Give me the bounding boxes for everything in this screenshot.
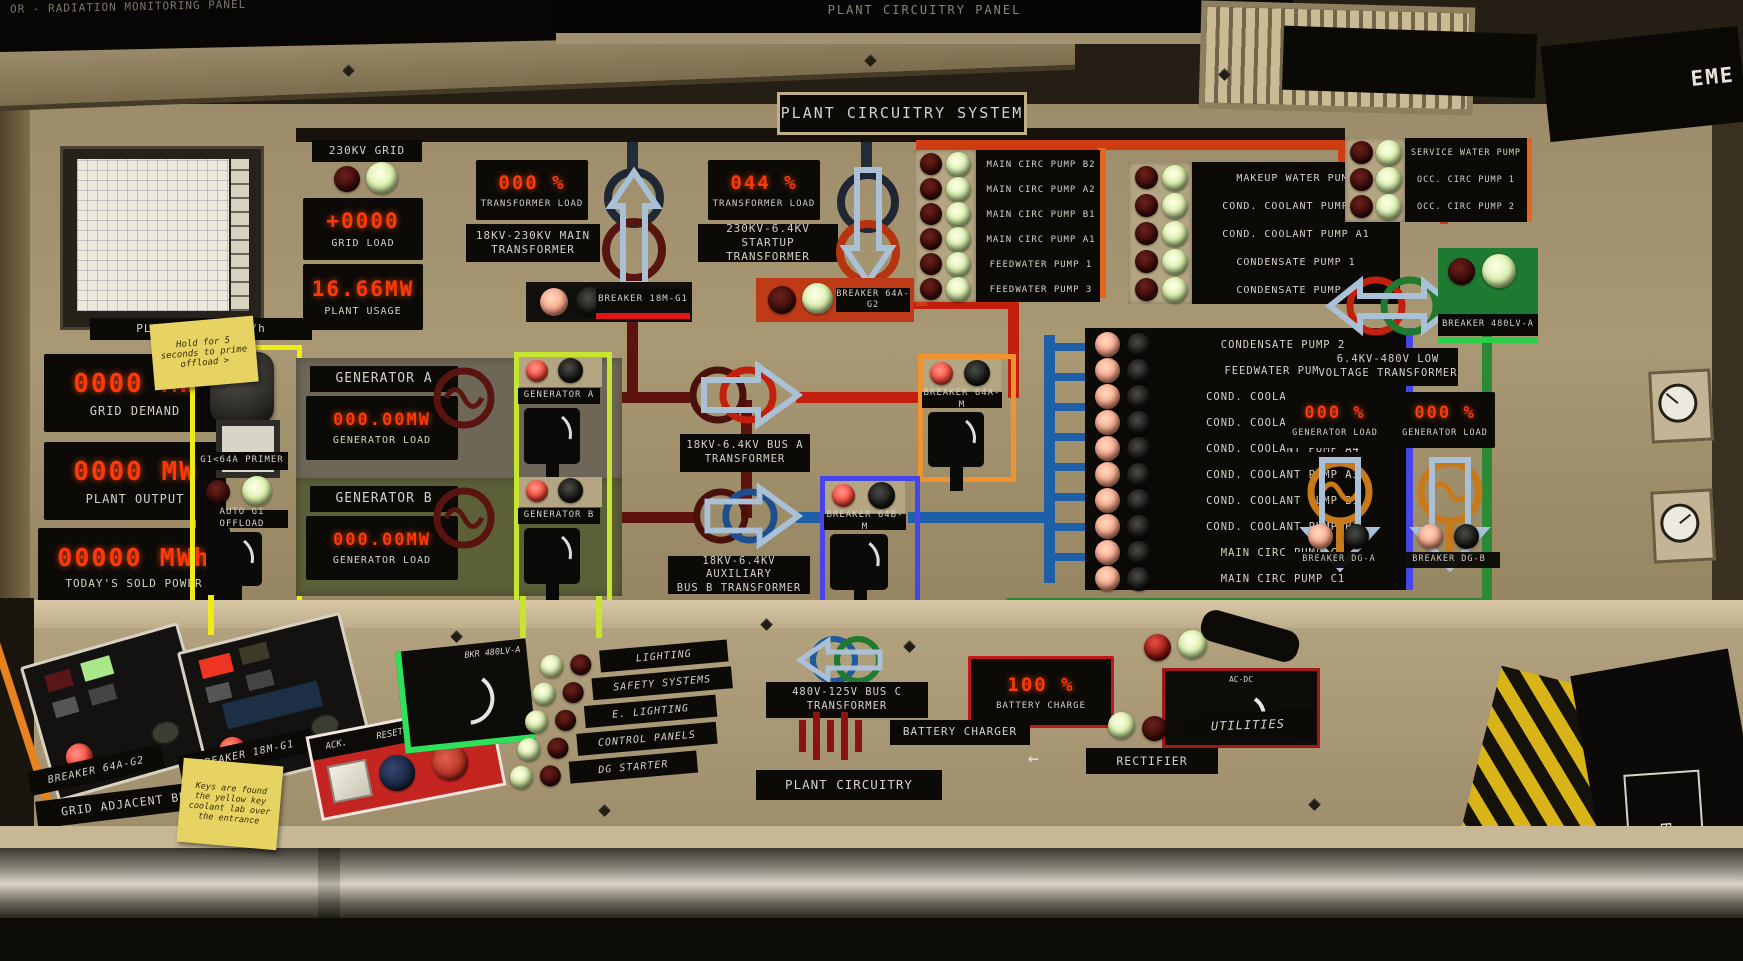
breaker-64am-light-off bbox=[964, 360, 990, 386]
pump-light-on bbox=[1095, 436, 1120, 461]
system-off-button[interactable] bbox=[539, 764, 562, 787]
bus-b-xfmr-text: 18KV-6.4KV AUXILIARY BUS B TRANSFORMER bbox=[668, 555, 810, 596]
console-keyhole[interactable] bbox=[148, 717, 183, 748]
plant-output-value: 0000 MW bbox=[73, 457, 197, 487]
pump-light-off bbox=[1127, 489, 1151, 513]
utilities-on-button[interactable] bbox=[1108, 712, 1135, 739]
breaker-64am-text: BREAKER 64A-M bbox=[922, 388, 1002, 411]
wire-stub-yellowgreen bbox=[520, 596, 526, 638]
pump-row-label: FEEDWATER PUMP 1 bbox=[976, 260, 1106, 270]
pump-light-on bbox=[1162, 193, 1188, 219]
pump-row-label: MAIN CIRC PUMP C1 bbox=[1157, 573, 1409, 585]
dg-b-light-on bbox=[1418, 524, 1443, 549]
system-row-text: SAFETY SYSTEMS bbox=[613, 672, 712, 694]
breaker-64am-light-on bbox=[930, 362, 953, 385]
breaker-18mg1-label: BREAKER 18M-G1 bbox=[596, 289, 690, 311]
pump-light-on bbox=[1162, 165, 1188, 191]
pump-row-label: COND. COOLANT PUMP A1 bbox=[1192, 229, 1400, 240]
pump-light-on bbox=[1376, 140, 1402, 166]
gen-a-breaker-light-on bbox=[526, 360, 548, 382]
startup-xfmr-load-value: 044 % bbox=[730, 172, 797, 194]
dg-b-light-off bbox=[1454, 524, 1479, 549]
indicator-square-gray bbox=[245, 669, 274, 691]
generator-a-symbol bbox=[430, 364, 498, 432]
breaker-64ag2-label: BREAKER 64A-G2 bbox=[836, 288, 910, 312]
pump-light-off bbox=[1135, 222, 1158, 245]
comb-tooth bbox=[1053, 463, 1085, 471]
plant-circuitry-label: PLANT CIRCUITRY bbox=[756, 770, 942, 800]
dg-a-load-label: GENERATOR LOAD bbox=[1292, 428, 1378, 438]
bus-a-xfmr-name: 18KV-6.4KV BUS A TRANSFORMER bbox=[680, 434, 810, 472]
wall-gauge-lower bbox=[1650, 488, 1716, 563]
plant-usage-value: 16.66MW bbox=[312, 277, 415, 301]
pump-light-off bbox=[1127, 463, 1151, 487]
pump-light-off bbox=[1127, 541, 1151, 565]
pump-light-on bbox=[1376, 194, 1402, 220]
plant-usage-label: PLANT USAGE bbox=[324, 306, 401, 317]
pump-light-on bbox=[1095, 332, 1120, 357]
indicator-square-red-on bbox=[198, 653, 234, 679]
utilities-off-button[interactable] bbox=[1142, 716, 1167, 741]
chart-recorder bbox=[60, 146, 264, 330]
breaker-64bm-label: BREAKER 64B-M bbox=[824, 514, 906, 530]
pump-row-label: MAIN CIRC PUMP A2 bbox=[976, 185, 1106, 195]
breaker-64bm-light-on bbox=[832, 484, 855, 507]
pump-light-off bbox=[1127, 359, 1151, 383]
breaker-64ag2-text: BREAKER 64A-G2 bbox=[836, 289, 910, 311]
pump-light-off bbox=[920, 178, 942, 200]
primer-green-light bbox=[242, 476, 272, 506]
dg-a-light-on bbox=[1308, 524, 1333, 549]
pump-light-on bbox=[946, 277, 971, 302]
emergency-edge-text: EME bbox=[1690, 63, 1736, 91]
primer-label: G1<64A PRIMER bbox=[196, 452, 288, 470]
grid-offline-light bbox=[334, 166, 360, 192]
reset-button[interactable] bbox=[376, 752, 418, 794]
ack-button[interactable] bbox=[327, 759, 374, 804]
breaker-480lva-label: BREAKER 480LV-A bbox=[1438, 314, 1538, 336]
acdc-label: AC-DC bbox=[1165, 675, 1317, 684]
breaker-18mg1-text: BREAKER 18M-G1 bbox=[598, 294, 688, 306]
gen-b-breaker-text: GENERATOR B bbox=[524, 510, 595, 522]
sticky-note-keys: Keys are found the yellow key coolant la… bbox=[177, 758, 284, 850]
battery-charger-label: BATTERY CHARGER bbox=[890, 720, 1030, 745]
system-row-text: LIGHTING bbox=[635, 647, 692, 665]
pump-light-off bbox=[920, 253, 942, 275]
breaker-64am-label: BREAKER 64A-M bbox=[922, 392, 1002, 408]
pump-light-on bbox=[1095, 462, 1120, 487]
handrail-pipe bbox=[0, 848, 1743, 920]
indicator-square-gray bbox=[88, 683, 117, 706]
comb-tooth bbox=[1053, 373, 1085, 381]
comb-tooth bbox=[1053, 493, 1085, 501]
battery-symbol bbox=[795, 710, 875, 762]
auto-offload-text: AUTO G1 OFFLOAD bbox=[196, 507, 288, 530]
comb-tooth bbox=[1053, 523, 1085, 531]
grid-demand-label: GRID DEMAND bbox=[90, 404, 180, 418]
generator-a-name-text: GENERATOR A bbox=[335, 371, 432, 388]
pump-light-on bbox=[946, 252, 971, 277]
pump-light-on bbox=[946, 202, 971, 227]
pump-panel-main-circ: MAIN CIRC PUMP B2 MAIN CIRC PUMP A2 MAIN… bbox=[914, 150, 1106, 302]
chart-paper bbox=[77, 159, 229, 311]
bus-a-xfmr-symbol bbox=[686, 360, 804, 430]
comb-tooth bbox=[1053, 433, 1085, 441]
pump-row-label: OCC. CIRC PUMP 2 bbox=[1405, 202, 1527, 212]
main-xfmr-load-label: TRANSFORMER LOAD bbox=[481, 199, 584, 209]
gen-b-breaker-switch[interactable] bbox=[524, 528, 580, 584]
indicator-square-gray bbox=[52, 696, 79, 718]
pump-light-off bbox=[1127, 333, 1151, 357]
sold-power-label: TODAY'S SOLD POWER bbox=[65, 577, 202, 590]
sticky-note-prime: Hold for 5 seconds to prime offload > bbox=[149, 316, 258, 391]
generator-b-load-label: GENERATOR LOAD bbox=[333, 555, 431, 566]
emergency-edge-screen: EME bbox=[1541, 26, 1743, 142]
grid-online-light bbox=[366, 162, 398, 194]
breaker-18mg1-light-on bbox=[540, 288, 568, 316]
bus-b-xfmr-name: 18KV-6.4KV AUXILIARY BUS B TRANSFORMER bbox=[668, 556, 810, 594]
system-on-button[interactable] bbox=[539, 654, 564, 679]
wall-left-edge bbox=[0, 104, 30, 644]
gen-b-breaker-light-on bbox=[526, 480, 548, 502]
breaker-480lva-panel bbox=[1438, 248, 1538, 314]
breaker-64ag2-light-on bbox=[802, 283, 833, 314]
breaker-18mg1-bar bbox=[596, 313, 690, 319]
breaker-480lva-light-on bbox=[1482, 254, 1516, 288]
rectifier-arrow: ← bbox=[1028, 748, 1039, 769]
breaker-dgb-text: BREAKER DG-B bbox=[1412, 554, 1485, 565]
main-xfmr-load-value: 000 % bbox=[498, 172, 565, 194]
breaker-480lva-bar bbox=[1438, 337, 1538, 343]
breaker-dgb-label: BREAKER DG-B bbox=[1398, 552, 1500, 568]
gen-a-breaker-text: GENERATOR A bbox=[524, 390, 595, 402]
main-xfmr-symbol bbox=[593, 158, 675, 296]
generator-b-load-value: 000.00MW bbox=[333, 530, 431, 550]
dg-a-load-display: 000 % GENERATOR LOAD bbox=[1285, 392, 1385, 448]
pump-light-off bbox=[1135, 166, 1158, 189]
breaker-64bm-light-off bbox=[868, 482, 895, 509]
circuitry-monitor-screen: PLANT CIRCUITRY PANEL bbox=[556, 0, 1293, 34]
dg-a-load-value: 000 % bbox=[1304, 403, 1365, 423]
pump-light-on bbox=[1095, 410, 1120, 435]
bus-b-xfmr-symbol bbox=[690, 482, 804, 550]
system-row-text: CONTROL PANELS bbox=[597, 728, 696, 750]
primer-rotary-switch[interactable] bbox=[206, 532, 262, 586]
pump-light-off bbox=[1350, 141, 1373, 164]
pump-light-on bbox=[1162, 277, 1188, 303]
generator-b-name-text: GENERATOR B bbox=[335, 491, 432, 508]
breaker-64bm-switch[interactable] bbox=[830, 534, 888, 590]
startup-xfmr-name-text: 230KV-6.4KV STARTUP TRANSFORMER bbox=[698, 222, 838, 265]
startup-xfmr-symbol bbox=[827, 158, 909, 296]
pump-light-off bbox=[920, 153, 942, 175]
lv-xfmr-name: 6.4KV-480V LOW VOLTAGE TRANSFORMER bbox=[1318, 348, 1458, 386]
indicator-square-gray bbox=[205, 682, 232, 703]
pump-light-off bbox=[1127, 567, 1151, 591]
pump-row-label: MAIN CIRC PUMP B2 bbox=[976, 160, 1106, 170]
system-off-button[interactable] bbox=[554, 709, 577, 732]
dg-a-light-off bbox=[1344, 524, 1369, 549]
dg-b-load-label: GENERATOR LOAD bbox=[1402, 428, 1488, 438]
pump-row-label: MAIN CIRC PUMP B1 bbox=[976, 210, 1106, 220]
generator-a-load-value: 000.00MW bbox=[333, 410, 431, 430]
breaker-64am-switch[interactable] bbox=[928, 412, 984, 467]
pump-row-label: SERVICE WATER PUMP bbox=[1405, 148, 1527, 158]
plant-circuitry-text: PLANT CIRCUITRY bbox=[785, 777, 913, 793]
gen-a-breaker-label: GENERATOR A bbox=[518, 388, 600, 404]
pump-light-on bbox=[1095, 514, 1120, 539]
grid-load-value: +0000 bbox=[326, 209, 399, 233]
pump-light-off bbox=[920, 203, 942, 225]
breaker-64ag2-light-off bbox=[768, 286, 796, 314]
grid-230kv-text: 230KV GRID bbox=[329, 144, 405, 158]
wall-right-edge bbox=[1712, 104, 1743, 644]
pipe-joint bbox=[318, 848, 340, 920]
desk-breaker-480lva-switch[interactable] bbox=[442, 668, 502, 731]
system-on-button[interactable] bbox=[516, 737, 541, 762]
rectifier-text: RECTIFIER bbox=[1116, 754, 1187, 769]
breaker-dga-label: BREAKER DG-A bbox=[1288, 552, 1390, 568]
startup-xfmr-name: 230KV-6.4KV STARTUP TRANSFORMER bbox=[698, 224, 838, 262]
auto-offload-label: AUTO G1 OFFLOAD bbox=[196, 510, 288, 528]
plant-usage-display: 16.66MW PLANT USAGE bbox=[303, 264, 423, 330]
pump-light-off bbox=[920, 278, 942, 300]
gen-a-breaker-light-off bbox=[558, 358, 583, 383]
pump-light-on bbox=[1376, 167, 1402, 193]
primer-label-text: G1<64A PRIMER bbox=[200, 455, 283, 467]
generator-b-symbol bbox=[430, 484, 498, 552]
sold-power-value: 00000 MWh bbox=[57, 543, 210, 572]
comb-tooth bbox=[1053, 343, 1085, 351]
dg-b-load-value: 000 % bbox=[1414, 403, 1475, 423]
system-on-button[interactable] bbox=[532, 682, 557, 707]
battery-charge-value: 100 % bbox=[1007, 674, 1074, 696]
acdc-red-dome bbox=[1144, 634, 1171, 661]
pump-light-off bbox=[1135, 194, 1158, 217]
lv-xfmr-text: 6.4KV-480V LOW VOLTAGE TRANSFORMER bbox=[1318, 353, 1457, 380]
pump-light-off bbox=[1135, 278, 1158, 301]
wire-stub-yellowgreen bbox=[596, 596, 602, 638]
grid-load-display: +0000 GRID LOAD bbox=[303, 198, 423, 260]
indicator-square-red-off bbox=[44, 669, 74, 693]
pump-light-off bbox=[1350, 195, 1373, 218]
pump-row-label: MAIN CIRC PUMP A1 bbox=[976, 235, 1106, 245]
main-xfmr-name-text: 18KV-230KV MAIN TRANSFORMER bbox=[476, 229, 590, 258]
indicator-square-off bbox=[239, 642, 270, 665]
pump-light-on bbox=[1095, 488, 1120, 513]
system-off-button[interactable] bbox=[562, 681, 585, 704]
system-off-button[interactable] bbox=[569, 653, 592, 676]
system-off-button[interactable] bbox=[547, 737, 570, 760]
breaker-480lva-text: BREAKER 480LV-A bbox=[1442, 319, 1534, 330]
system-row-text: E. LIGHTING bbox=[612, 702, 690, 722]
pump-light-on bbox=[1095, 384, 1120, 409]
gen-a-breaker-switch[interactable] bbox=[524, 408, 580, 464]
radiation-screen-title: OR - RADIATION MONITORING PANEL bbox=[10, 0, 246, 16]
rectifier-label: RECTIFIER bbox=[1086, 748, 1218, 774]
ack-label: ACK. bbox=[325, 738, 348, 752]
plant-output-label: PLANT OUTPUT bbox=[86, 492, 185, 506]
system-on-button[interactable] bbox=[524, 709, 549, 734]
pump-light-off bbox=[1127, 385, 1151, 409]
wire-bus-a-out bbox=[796, 392, 920, 403]
pump-light-off bbox=[1127, 515, 1151, 539]
panel-title: PLANT CIRCUITRY SYSTEM bbox=[781, 104, 1024, 124]
pump-row-label: OCC. CIRC PUMP 1 bbox=[1405, 175, 1527, 185]
desk-left-shadow bbox=[0, 598, 34, 858]
console-screen bbox=[222, 680, 323, 729]
pump-row-label: FEEDWATER PUMP 3 bbox=[976, 285, 1106, 295]
startup-xfmr-load-label: TRANSFORMER LOAD bbox=[713, 199, 816, 209]
main-xfmr-load-display: 000 % TRANSFORMER LOAD bbox=[476, 160, 588, 220]
pump-light-off bbox=[1135, 250, 1158, 273]
breaker-64am-stem bbox=[950, 467, 963, 491]
battery-charge-display: 100 % BATTERY CHARGE bbox=[968, 656, 1114, 728]
circuitry-screen-title: PLANT CIRCUITRY PANEL bbox=[828, 3, 1022, 17]
breaker-dga-text: BREAKER DG-A bbox=[1302, 554, 1375, 565]
control-room: OR - RADIATION MONITORING PANEL PLANT CI… bbox=[0, 0, 1743, 961]
battery-charger-text: BATTERY CHARGER bbox=[903, 725, 1017, 739]
system-on-button[interactable] bbox=[509, 765, 534, 790]
chart-scale bbox=[231, 159, 249, 311]
gen-b-breaker-label: GENERATOR B bbox=[518, 508, 600, 524]
grid-230kv-label: 230KV GRID bbox=[312, 140, 422, 162]
wire-bus-b-run bbox=[908, 512, 1050, 523]
breaker-64bm-text: BREAKER 64B-M bbox=[824, 510, 906, 533]
floor-shadow bbox=[0, 918, 1743, 961]
pump-light-on bbox=[1095, 566, 1120, 591]
pump-light-off bbox=[1350, 168, 1373, 191]
breaker-480lva-light-off bbox=[1448, 258, 1475, 285]
pump-panel-service: SERVICE WATER PUMP OCC. CIRC PUMP 1 OCC.… bbox=[1345, 138, 1527, 222]
comb-tooth bbox=[1053, 553, 1085, 561]
pump-light-on bbox=[1095, 358, 1120, 383]
wire-stub-yellow bbox=[208, 595, 214, 635]
breaker-64ag2-panel: BREAKER 64A-G2 bbox=[756, 278, 914, 322]
pump-light-on bbox=[946, 152, 971, 177]
battery-charge-label: BATTERY CHARGE bbox=[996, 701, 1086, 711]
pump-light-on bbox=[946, 177, 971, 202]
comb-tooth bbox=[1053, 403, 1085, 411]
utilities-label: UTILITIES bbox=[1182, 710, 1315, 743]
pump-light-off bbox=[1127, 437, 1151, 461]
pump-light-off bbox=[1127, 411, 1151, 435]
pump-light-on bbox=[1095, 540, 1120, 565]
monitor-bezel-center bbox=[556, 33, 1293, 44]
wall-gauge-upper bbox=[1648, 368, 1714, 443]
generator-a-load-label: GENERATOR LOAD bbox=[333, 435, 431, 446]
bus-a-xfmr-text: 18KV-6.4KV BUS A TRANSFORMER bbox=[686, 439, 803, 466]
gen-b-breaker-light-off bbox=[558, 478, 583, 503]
pump-light-on bbox=[1162, 221, 1188, 247]
utilities-text: UTILITIES bbox=[1211, 717, 1286, 735]
pump-light-off bbox=[920, 228, 942, 250]
aux-screen-right bbox=[1282, 26, 1537, 99]
desk-top-strip bbox=[0, 600, 1743, 630]
system-row-text: DG STARTER bbox=[598, 758, 669, 777]
primer-red-light bbox=[206, 480, 230, 504]
main-xfmr-name: 18KV-230KV MAIN TRANSFORMER bbox=[466, 224, 600, 262]
panel-title-placard: PLANT CIRCUITRY SYSTEM bbox=[780, 95, 1024, 132]
indicator-square-green-on bbox=[80, 655, 114, 682]
pump-light-on bbox=[946, 227, 971, 252]
pump-light-on bbox=[1162, 249, 1188, 275]
startup-xfmr-load-display: 044 % TRANSFORMER LOAD bbox=[708, 160, 820, 220]
grid-load-label: GRID LOAD bbox=[331, 238, 394, 249]
dg-b-load-display: 000 % GENERATOR LOAD bbox=[1395, 392, 1495, 448]
